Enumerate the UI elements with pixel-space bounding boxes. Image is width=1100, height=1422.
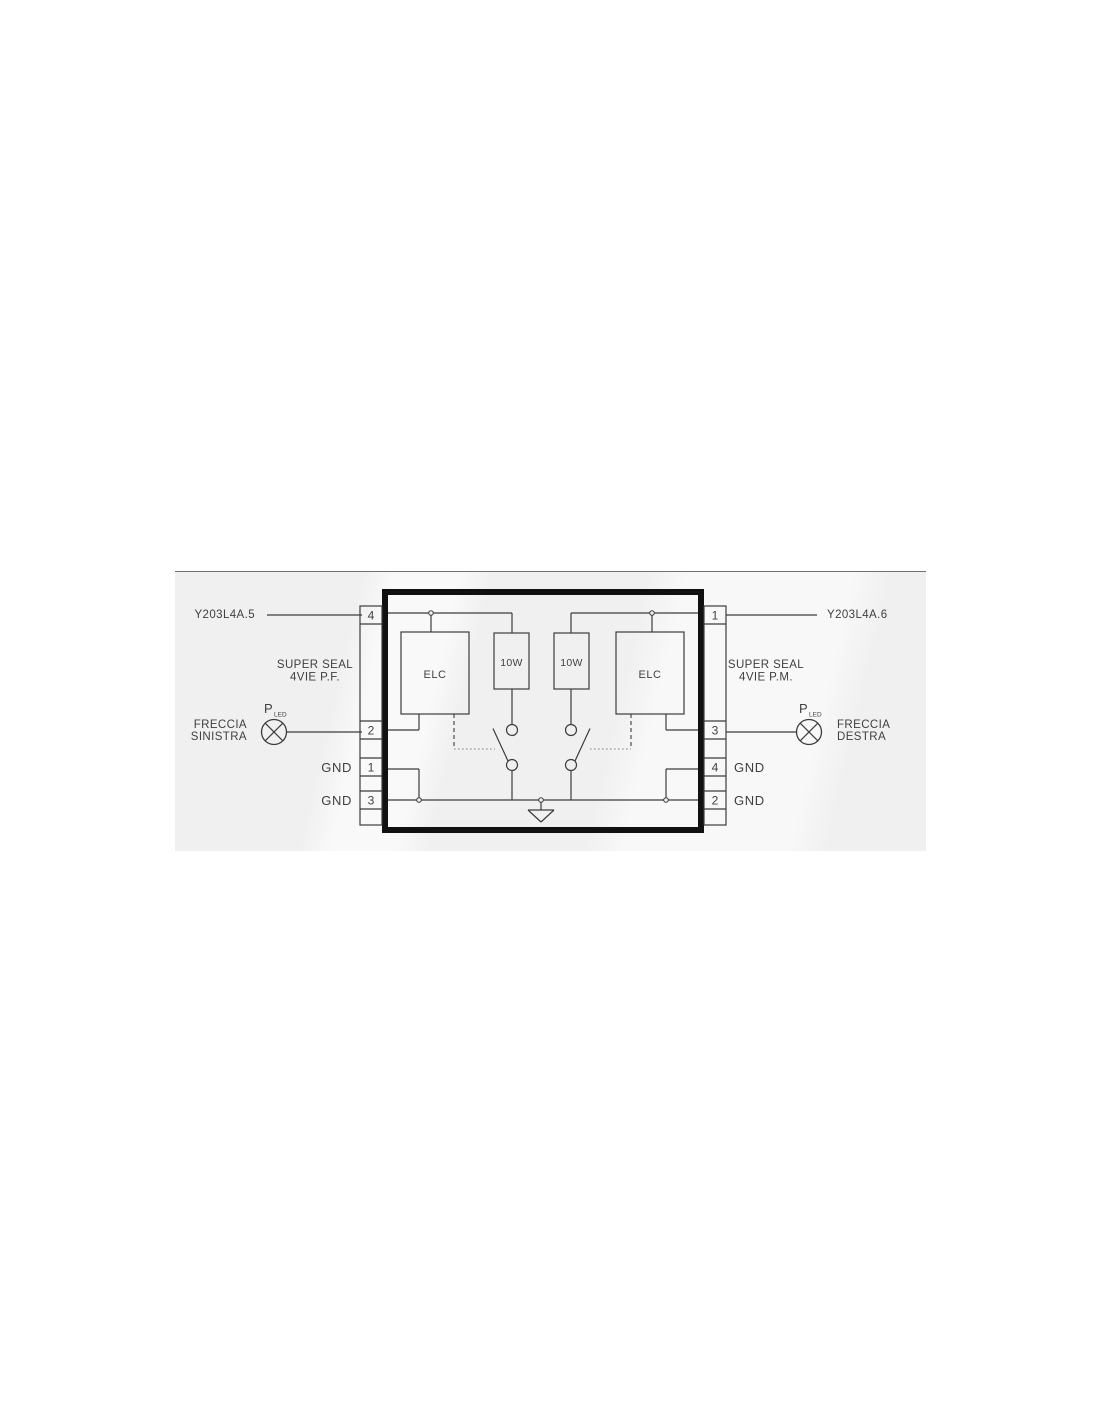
left-switch-fixed-contact — [507, 725, 518, 736]
right-channel: 10W ELC — [554, 611, 698, 800]
left-switch-moving-contact — [507, 760, 518, 771]
wiring-diagram: Y203L4A.5 SUPER SEAL 4VIE P.F. P LED FRE… — [175, 572, 926, 851]
left-lamp-icon — [262, 720, 287, 745]
right-gnd-label-bottom: GND — [734, 793, 765, 808]
ground-node-center — [539, 798, 544, 803]
right-switch-fixed-contact — [566, 725, 577, 736]
right-pin-number: 4 — [712, 761, 719, 775]
right-elc-label: ELC — [639, 669, 662, 681]
left-lamp-name-line1: FRECCIA — [194, 719, 247, 731]
left-lamp-power-subscript: LED — [274, 712, 287, 719]
right-lamp-name-line2: DESTRA — [837, 731, 886, 743]
left-connector-strip: 4 2 1 3 — [360, 606, 382, 825]
right-connector-type-line2: 4VIE P.M. — [739, 672, 793, 684]
left-pin-number: 4 — [368, 609, 375, 623]
left-channel: ELC 10W — [388, 611, 529, 800]
earth-ground-chevron-left — [528, 810, 541, 822]
earth-ground-icon — [528, 802, 554, 822]
left-resistor-label: 10W — [500, 657, 523, 669]
left-switch-blade — [493, 729, 508, 762]
right-lamp-power-subscript: LED — [809, 712, 822, 719]
right-switch-moving-contact — [566, 760, 577, 771]
earth-ground-chevron-right — [541, 810, 554, 822]
right-lamp-icon — [797, 720, 822, 745]
flasher-unit-box — [385, 592, 701, 830]
left-pin-number: 1 — [368, 761, 375, 775]
right-harness-label: Y203L4A.6 — [827, 609, 888, 621]
right-strip-outline — [704, 606, 726, 825]
right-connector-strip: 1 3 4 2 — [704, 606, 726, 825]
left-connector-type-line1: SUPER SEAL — [277, 659, 353, 671]
left-supply-node — [429, 611, 434, 616]
ground-node-left — [417, 798, 422, 803]
left-connector-type-line2: 4VIE P.F. — [290, 672, 340, 684]
left-harness-label: Y203L4A.5 — [194, 609, 255, 621]
diagram-panel: Y203L4A.5 SUPER SEAL 4VIE P.F. P LED FRE… — [175, 571, 926, 851]
ground-node-right — [664, 798, 669, 803]
right-lamp-power-label: P — [799, 701, 808, 716]
left-gnd-label-bottom: GND — [321, 793, 352, 808]
right-pin-number: 2 — [712, 794, 719, 808]
left-gnd-label-top: GND — [321, 760, 352, 775]
right-resistor-label: 10W — [560, 657, 583, 669]
left-pin-number: 2 — [368, 724, 375, 738]
left-elc-label: ELC — [424, 669, 447, 681]
left-lamp-name-line2: SINISTRA — [191, 731, 247, 743]
left-strip-outline — [360, 606, 382, 825]
left-pin-number: 3 — [368, 794, 375, 808]
right-supply-node — [650, 611, 655, 616]
ground-bus — [388, 798, 698, 822]
right-gnd-label-top: GND — [734, 760, 765, 775]
right-switch-blade — [575, 729, 590, 762]
right-pin-number: 1 — [712, 609, 719, 623]
left-lamp-power-label: P — [264, 701, 273, 716]
right-lamp-name-line1: FRECCIA — [837, 719, 890, 731]
right-pin-number: 3 — [712, 724, 719, 738]
right-connector-type-line1: SUPER SEAL — [728, 659, 804, 671]
